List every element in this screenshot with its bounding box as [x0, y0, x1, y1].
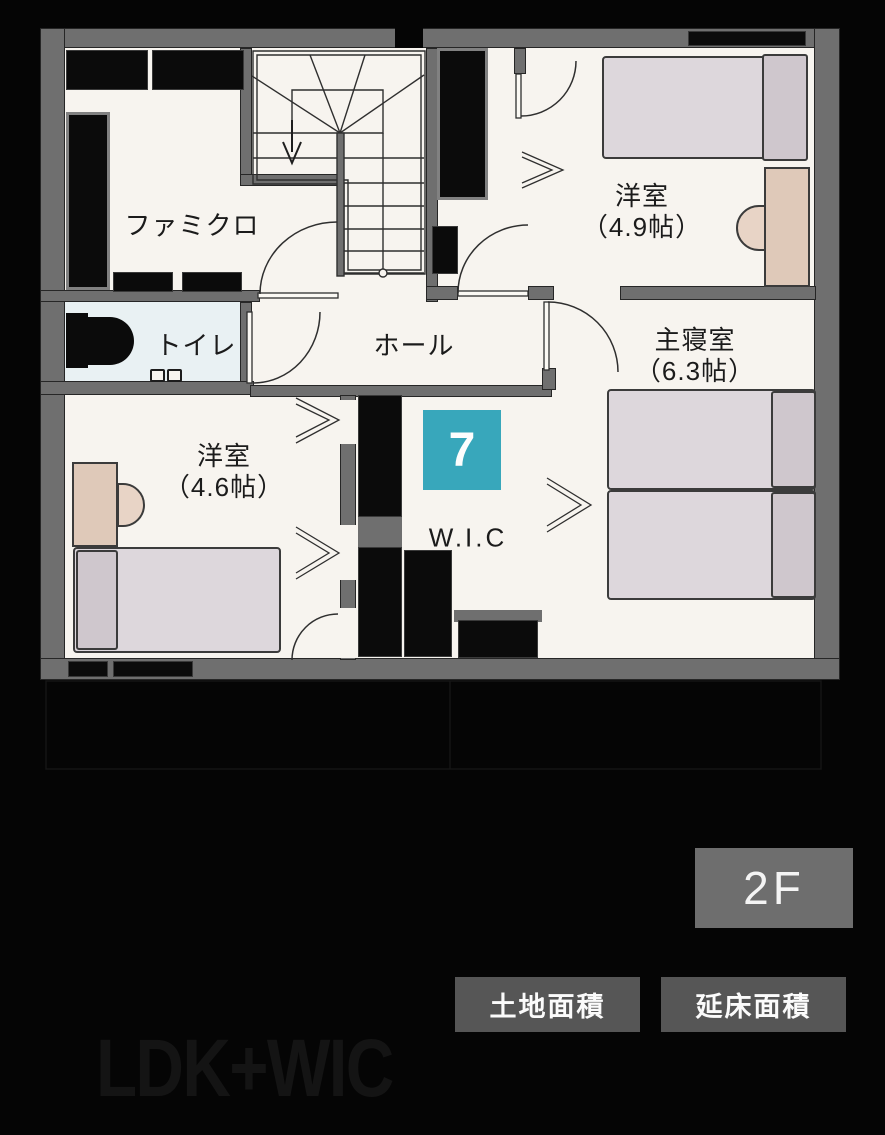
bedroom49-name-text: 洋室 [582, 181, 702, 212]
bed-head-bedroom46 [76, 550, 118, 650]
wall-master-top [620, 286, 816, 300]
closet-famiclo-bottom-1 [113, 272, 173, 292]
room-label-hall: ホール [373, 331, 454, 362]
window-bedroom46-bottom-2 [113, 661, 193, 677]
closet-corridor [432, 226, 458, 274]
toilet-paper-holder-1 [150, 369, 165, 382]
master-size-text: （6.3帖） [635, 356, 755, 387]
room-label-bedroom-49: 洋室 （4.9帖） [582, 181, 702, 243]
room-label-bedroom-46: 洋室 （4.6帖） [164, 441, 284, 503]
window-bedroom46-bottom-1 [68, 661, 108, 677]
bedroom46-name-text: 洋室 [164, 441, 284, 472]
wic-closet-column-lower [358, 547, 402, 657]
opening-door-bedroom46 [340, 608, 356, 658]
window-bedroom49-top [688, 31, 806, 46]
wall-outer-left [40, 28, 65, 680]
closet-famiclo-bottom-2 [182, 272, 242, 292]
toilet-tank [66, 313, 88, 368]
toilet-bowl [86, 317, 134, 365]
wall-door-stub-bedroom49 [514, 48, 526, 74]
wardrobe-bedroom49 [437, 48, 488, 200]
toilet-label-text: トイレ [155, 331, 236, 362]
opening-closet-upper [340, 400, 356, 444]
wic-closet-divider [358, 517, 402, 547]
wall-toilet-bottom [40, 381, 254, 395]
balcony-faint-outline [46, 681, 821, 769]
stairwell-void [395, 28, 423, 48]
wall-mid-b [528, 286, 554, 300]
wic-closet-column-2 [404, 550, 452, 657]
floor-badge-2f: 2F [695, 848, 853, 928]
closet-famiclo-tall [66, 112, 110, 290]
desk-bedroom49 [764, 167, 810, 287]
toilet-paper-holder-2 [167, 369, 182, 382]
ldk-wic-watermark: LDK+WIC [96, 1022, 393, 1116]
wall-toilet-right [240, 302, 252, 383]
room-label-wic: W.I.C [429, 523, 508, 554]
wall-master-door-stub [542, 368, 556, 390]
famiclo-label-text: ファミクロ [124, 211, 259, 242]
wic-closet-column-upper [358, 395, 402, 517]
wic-label-text: W.I.C [429, 523, 508, 554]
desk-bedroom46 [72, 462, 118, 547]
wic-bottom-shelf [458, 620, 538, 658]
bed-head-master-2 [771, 492, 816, 598]
bed-head-master-1 [771, 391, 816, 488]
opening-closet-lower [340, 525, 356, 580]
total-floor-area-badge: 延床面積 [661, 977, 846, 1032]
wall-mid-a [426, 286, 458, 300]
wall-stair-bottom-left [240, 174, 344, 186]
bedroom46-size-text: （4.6帖） [164, 472, 284, 503]
land-area-badge: 土地面積 [455, 977, 640, 1032]
closet-famiclo-top-1 [66, 50, 148, 90]
room-label-famiclo: ファミクロ [124, 211, 259, 242]
wall-outer-right [814, 28, 840, 680]
bedroom49-size-text: （4.9帖） [582, 212, 702, 243]
bed-head-bedroom49 [762, 54, 808, 161]
master-name-text: 主寝室 [635, 325, 755, 356]
room-label-master-bedroom: 主寝室 （6.3帖） [635, 325, 755, 387]
floor-plan-page: ファミクロ トイレ ホール 洋室 （4.9帖） 主寝室 （6.3帖） 洋室 （4… [0, 0, 885, 1135]
room-label-toilet: トイレ [155, 331, 236, 362]
closet-famiclo-top-2 [152, 50, 244, 90]
hall-label-text: ホール [373, 331, 454, 362]
plan-number-badge: 7 [423, 410, 501, 490]
